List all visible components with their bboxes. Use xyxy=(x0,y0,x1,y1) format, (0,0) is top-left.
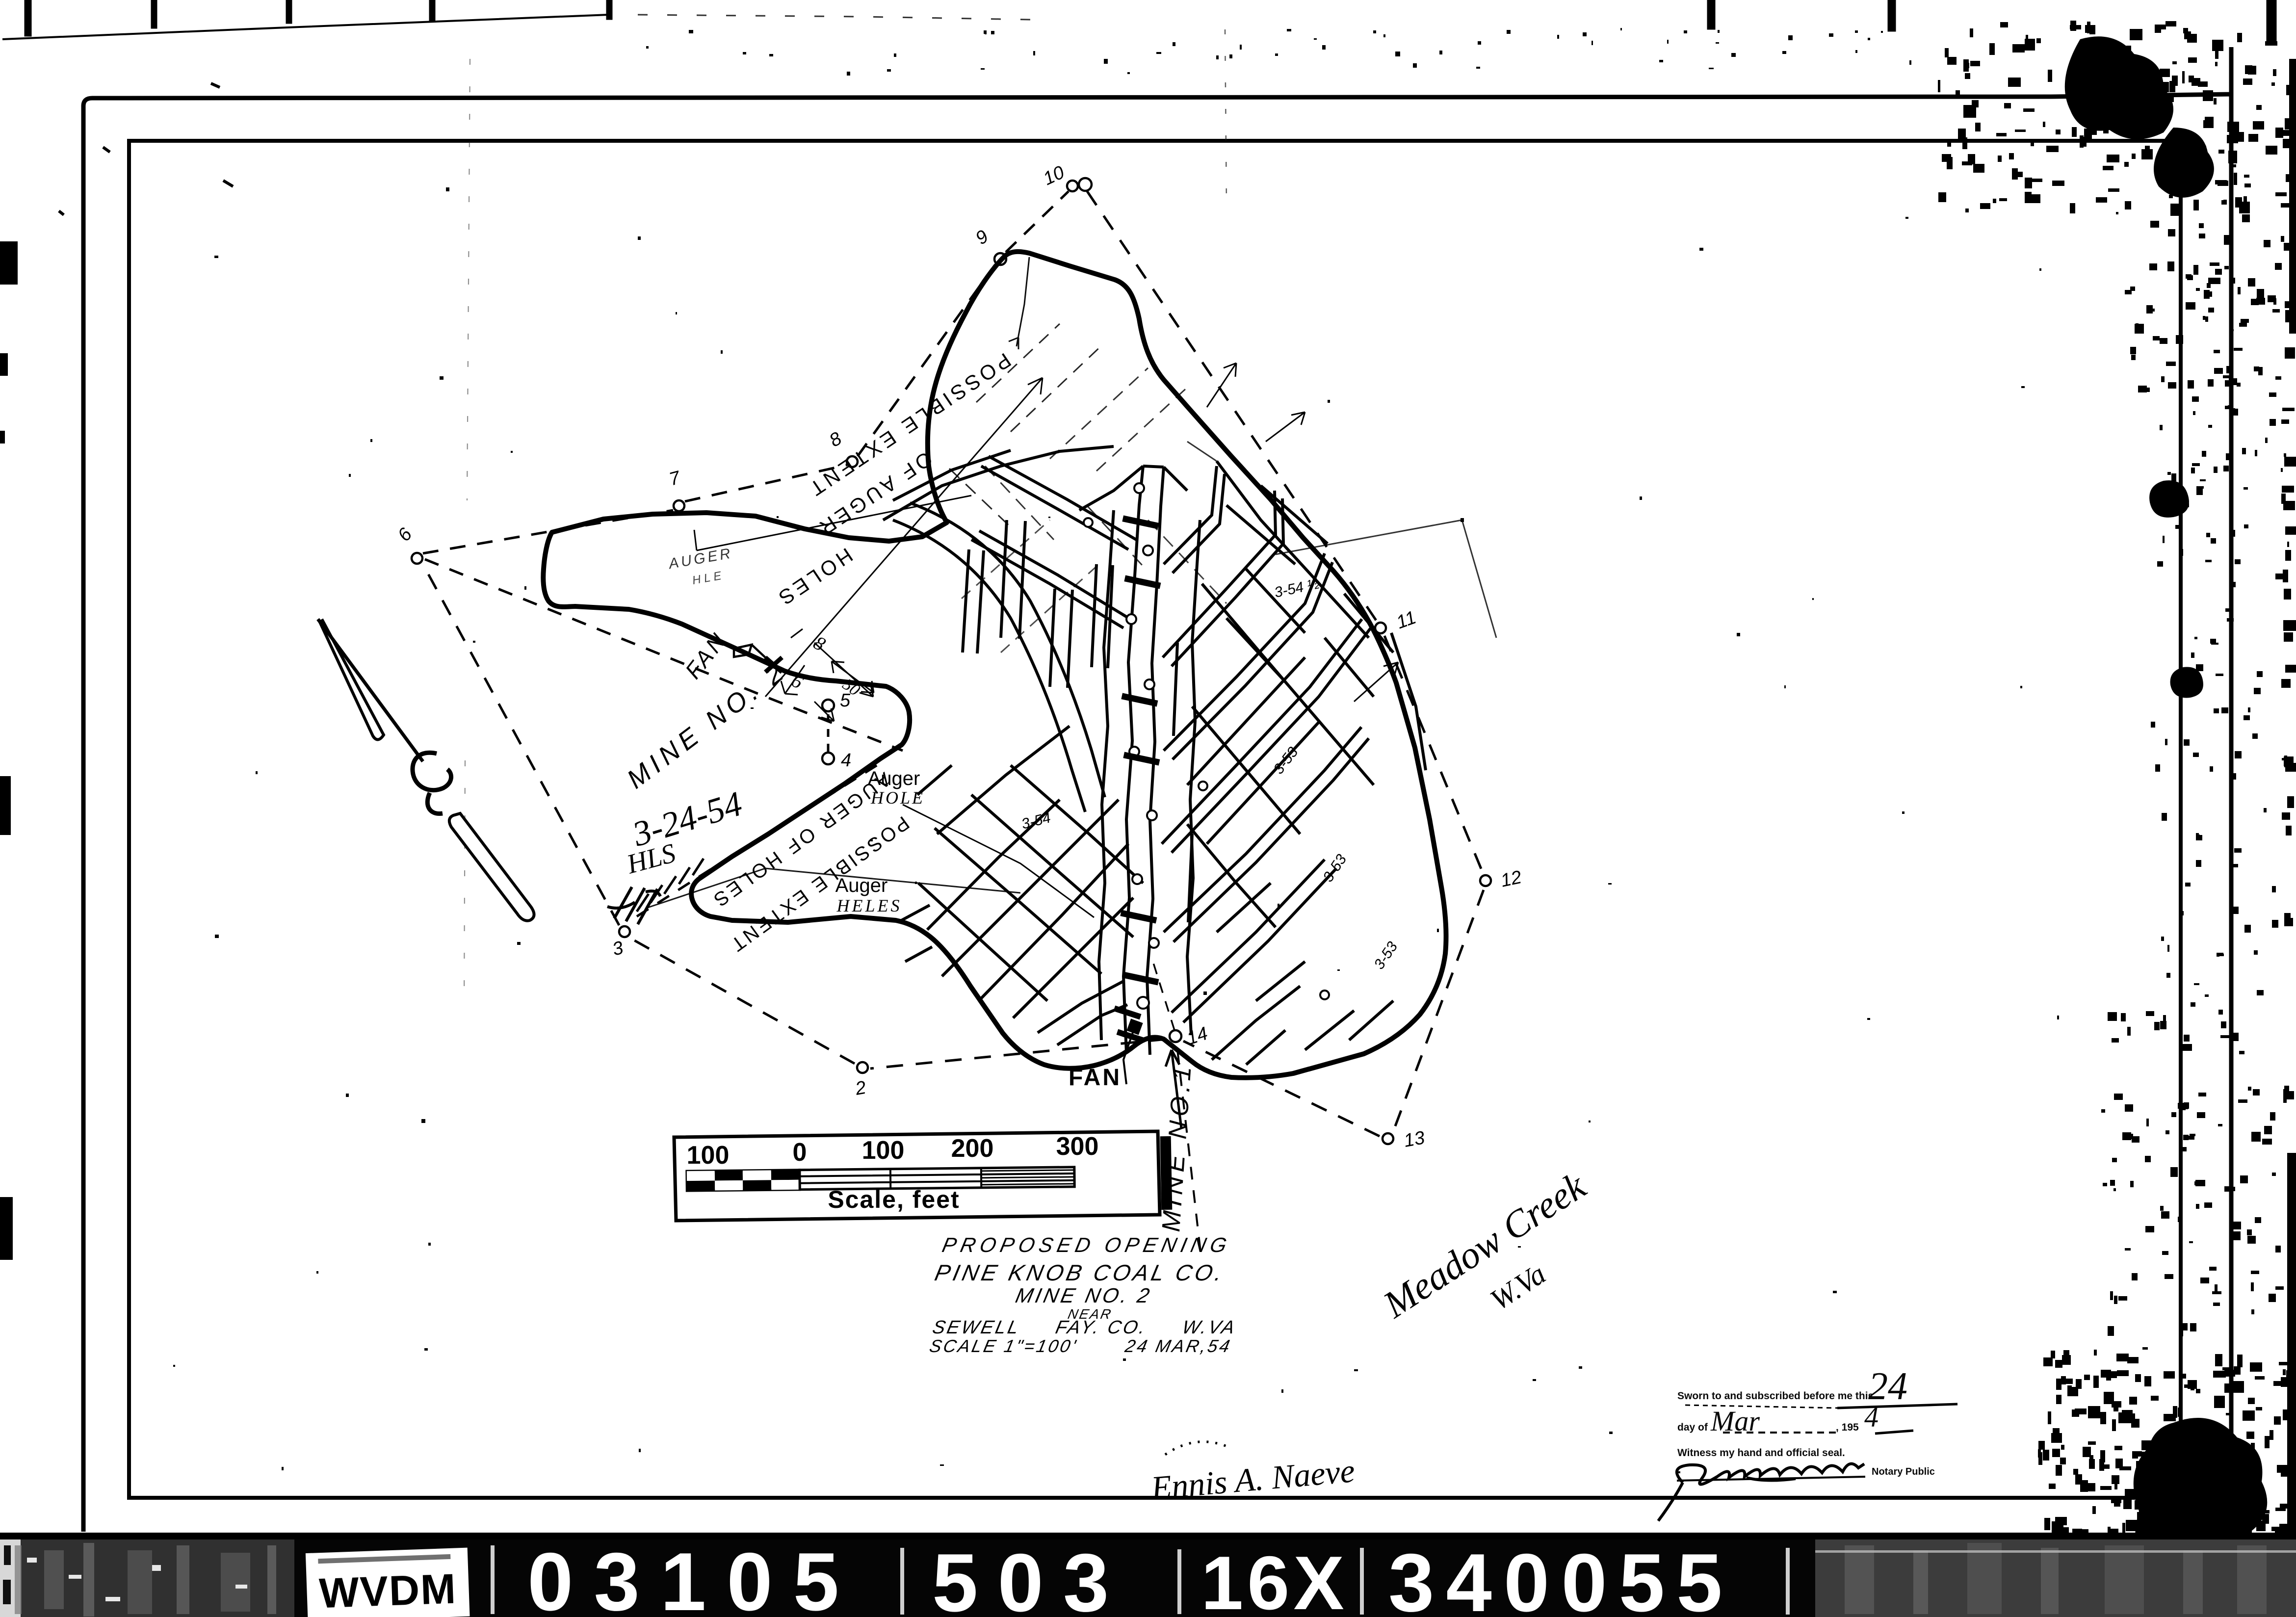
svg-text:HOLE: HOLE xyxy=(870,788,925,808)
svg-text:100: 100 xyxy=(687,1141,730,1170)
svg-text:100: 100 xyxy=(862,1136,905,1165)
svg-text:WVDM: WVDM xyxy=(318,1565,457,1617)
svg-text:16X: 16X xyxy=(1201,1540,1348,1617)
svg-text:503: 503 xyxy=(932,1537,1128,1617)
svg-text:FAN: FAN xyxy=(1069,1065,1122,1091)
svg-text:PINE KNOB COAL CO.: PINE KNOB COAL CO. xyxy=(933,1260,1227,1285)
svg-text:Witness my hand and official s: Witness my hand and official seal. xyxy=(1677,1447,1845,1459)
svg-text:HELES: HELES xyxy=(836,896,902,915)
svg-text:4: 4 xyxy=(1864,1401,1879,1433)
svg-text:Sworn to and subscribed before: Sworn to and subscribed before me this xyxy=(1677,1390,1874,1402)
svg-text:MINE NO. 2: MINE NO. 2 xyxy=(1014,1284,1154,1306)
svg-text:340055: 340055 xyxy=(1388,1537,1734,1617)
svg-text:300: 300 xyxy=(1056,1132,1099,1161)
svg-text:SEWELL FAY. CO. W.VA: SEWELL FAY. CO. W.VA xyxy=(931,1317,1239,1338)
svg-text:200: 200 xyxy=(951,1134,994,1163)
svg-text:Auger: Auger xyxy=(835,875,888,896)
svg-text:Scale, feet: Scale, feet xyxy=(828,1186,960,1213)
svg-text:Auger: Auger xyxy=(868,768,920,789)
svg-text:SCALE 1"=100' 24 MAR,54: SCALE 1"=100' 24 MAR,54 xyxy=(928,1336,1233,1356)
svg-text:day of: day of xyxy=(1677,1422,1708,1433)
svg-text:4: 4 xyxy=(841,750,851,771)
svg-text:PROPOSED OPENING: PROPOSED OPENING xyxy=(940,1233,1233,1256)
svg-text:13: 13 xyxy=(1402,1127,1426,1151)
svg-text:, 195: , 195 xyxy=(1836,1422,1859,1433)
svg-text:03105: 03105 xyxy=(527,1536,860,1617)
svg-text:Notary Public: Notary Public xyxy=(1872,1466,1935,1477)
svg-text:0: 0 xyxy=(793,1138,807,1167)
svg-text:12: 12 xyxy=(1499,867,1523,891)
